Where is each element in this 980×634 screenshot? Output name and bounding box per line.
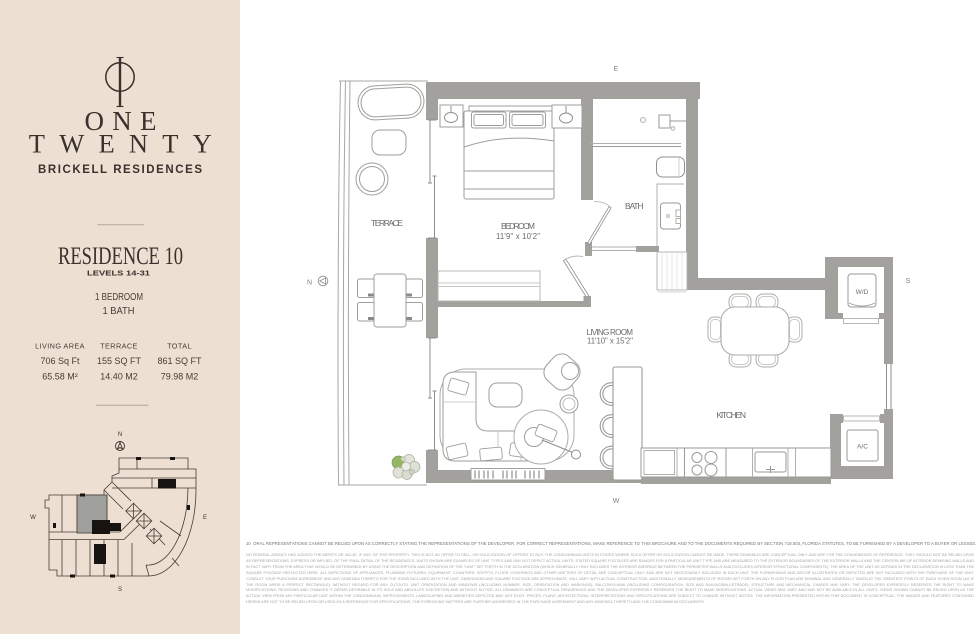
- svg-text:TERRACE: TERRACE: [371, 218, 403, 228]
- svg-text:A/C: A/C: [857, 444, 868, 451]
- svg-text:KITCHEN: KITCHEN: [717, 410, 747, 420]
- svg-text:E: E: [614, 66, 619, 73]
- svg-text:N: N: [307, 280, 312, 287]
- svg-text:W: W: [613, 498, 620, 505]
- svg-text:11'10" x 15'2": 11'10" x 15'2": [587, 337, 633, 346]
- svg-text:11'9" x 10'2": 11'9" x 10'2": [496, 232, 540, 241]
- svg-text:S: S: [906, 278, 911, 285]
- svg-text:W/D: W/D: [856, 289, 869, 296]
- svg-text:BATH: BATH: [625, 201, 644, 211]
- svg-text:BEDROOM: BEDROOM: [501, 221, 535, 231]
